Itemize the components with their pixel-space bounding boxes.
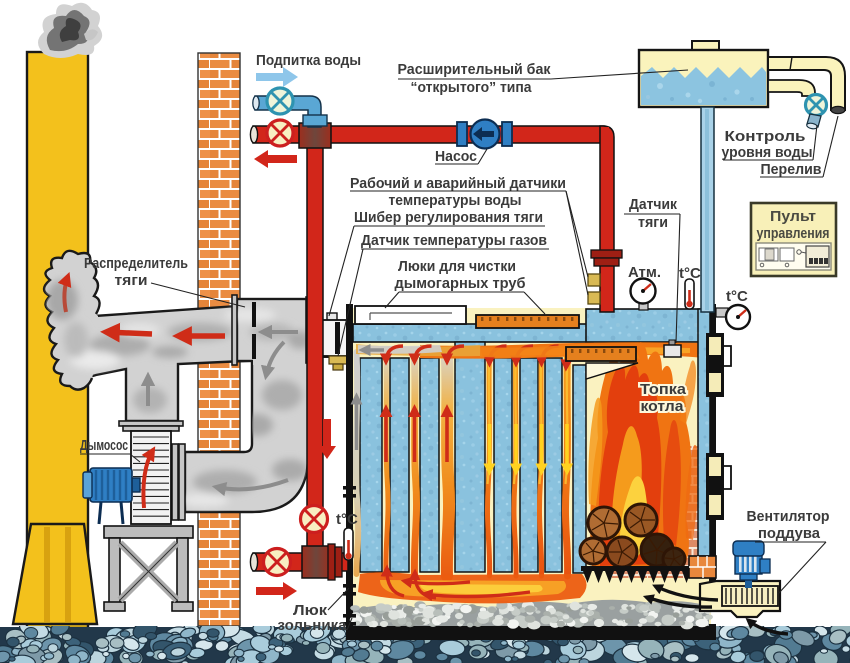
svg-text:Насос: Насос <box>435 148 477 165</box>
svg-text:Пульт: Пульт <box>770 208 816 225</box>
svg-text:t°C: t°C <box>726 288 748 305</box>
svg-text:температуры воды: температуры воды <box>389 192 522 209</box>
svg-text:дымогарных труб: дымогарных труб <box>395 275 526 292</box>
svg-text:Вентилятор: Вентилятор <box>747 508 830 525</box>
svg-text:Перелив: Перелив <box>761 161 822 178</box>
svg-text:Рабочий и аварийный датчики: Рабочий и аварийный датчики <box>350 175 566 192</box>
svg-text:Контроль: Контроль <box>725 128 806 145</box>
svg-text:зольника: зольника <box>278 617 348 634</box>
svg-text:Распределитель: Распределитель <box>84 255 188 272</box>
svg-text:Дымосос: Дымосос <box>80 437 128 454</box>
svg-text:t°C: t°C <box>679 265 701 282</box>
svg-text:Расширительный бак: Расширительный бак <box>398 61 551 78</box>
svg-text:Атм.: Атм. <box>628 264 661 281</box>
svg-text:t°C: t°C <box>336 511 358 528</box>
svg-text:Топка: Топка <box>640 381 687 398</box>
svg-text:тяги: тяги <box>638 214 668 231</box>
svg-text:Датчик: Датчик <box>629 196 677 213</box>
svg-text:тяги: тяги <box>115 272 148 289</box>
svg-text:Люки для чистки: Люки для чистки <box>398 258 516 275</box>
svg-text:Шибер регулирования тяги: Шибер регулирования тяги <box>354 209 543 226</box>
svg-text:“открытого” типа: “открытого” типа <box>411 79 533 96</box>
svg-text:управления: управления <box>757 225 830 242</box>
svg-text:Подпитка воды: Подпитка воды <box>256 52 361 69</box>
svg-text:уровня воды: уровня воды <box>722 144 813 161</box>
svg-text:котла: котла <box>641 398 685 415</box>
svg-text:Датчик температуры газов: Датчик температуры газов <box>361 232 547 249</box>
svg-text:поддува: поддува <box>758 525 821 542</box>
